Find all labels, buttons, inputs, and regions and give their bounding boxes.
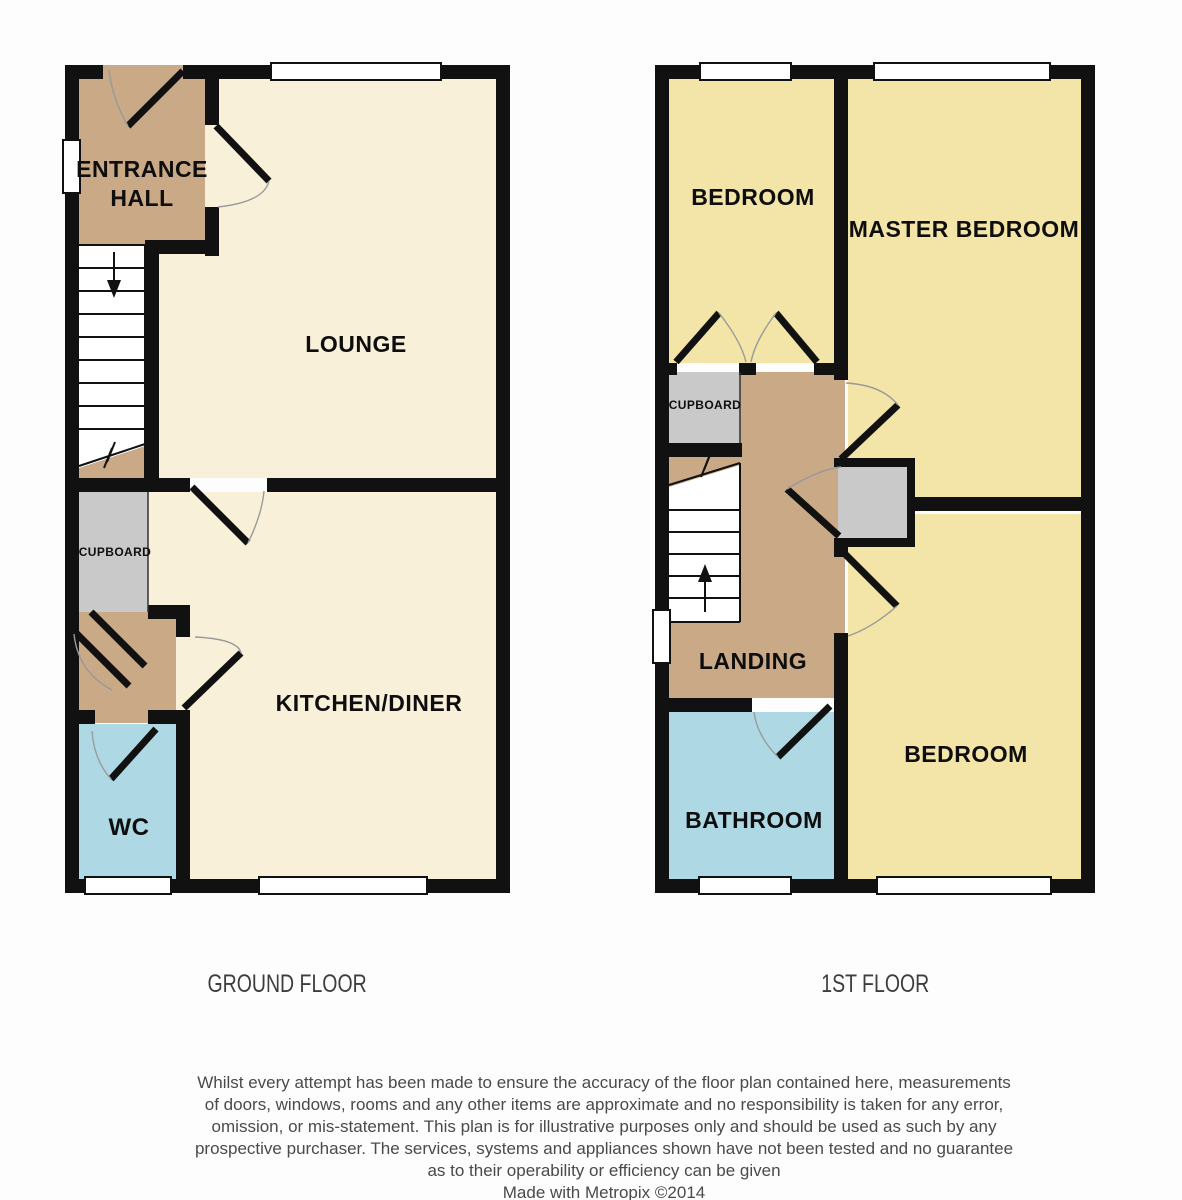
bedroom-front-window	[700, 63, 791, 80]
room-label-entrance-hall-1: ENTRANCE	[76, 156, 208, 182]
metropix-credit: Made with Metropix ©2014	[104, 1182, 1104, 1200]
room-master-bedroom-fill	[848, 79, 1081, 498]
room-bedroom-back-fill	[848, 514, 1081, 879]
disclaimer-line: as to their operability or efficiency ca…	[104, 1160, 1104, 1182]
airing-cupboard	[834, 458, 915, 547]
room-label-lounge: LOUNGE	[305, 331, 406, 357]
lounge-window	[271, 63, 441, 80]
disclaimer-line: Whilst every attempt has been made to en…	[104, 1072, 1104, 1094]
bedroom-back-window	[877, 877, 1051, 894]
wc-window	[85, 877, 171, 894]
room-bedroom-front-fill	[669, 79, 837, 363]
first-floor-caption: 1ST FLOOR	[655, 970, 1095, 999]
first-floor-caption-text: 1ST FLOOR	[821, 970, 929, 999]
room-label-master-bedroom: MASTER BEDROOM	[849, 216, 1080, 242]
room-label-cupboard-gf: CUPBOARD	[79, 545, 152, 559]
rear-hall-fill	[79, 612, 176, 723]
room-label-wc: WC	[109, 814, 150, 841]
room-lounge-fill	[159, 79, 496, 478]
disclaimer: Whilst every attempt has been made to en…	[104, 1072, 1104, 1200]
room-label-entrance-hall-2: HALL	[110, 185, 173, 211]
master-bedroom-window	[874, 63, 1050, 80]
room-bathroom-fill	[669, 712, 837, 879]
airing-cupboard-fill	[838, 467, 908, 538]
floorplan-canvas: ENTRANCE HALL LOUNGE CUPBOARD KITCHEN/DI…	[0, 0, 1182, 1200]
room-entrance-hall-fill	[79, 65, 205, 245]
room-label-cupboard-ff: CUPBOARD	[669, 398, 742, 412]
bathroom-window	[699, 877, 791, 894]
stairs-gf-fill	[79, 245, 145, 468]
ground-floor-plan: ENTRANCE HALL LOUNGE CUPBOARD KITCHEN/DI…	[63, 63, 510, 894]
room-label-bedroom-front: BEDROOM	[691, 184, 815, 210]
disclaimer-line: of doors, windows, rooms and any other i…	[104, 1094, 1104, 1116]
first-floor-plan: BEDROOM MASTER BEDROOM CUPBOARD LANDING …	[653, 63, 1095, 894]
room-wc-fill	[79, 724, 176, 879]
floorplan-drawing: ENTRANCE HALL LOUNGE CUPBOARD KITCHEN/DI…	[0, 0, 1182, 960]
kitchen-window	[259, 877, 427, 894]
room-kitchen-diner-fill	[148, 492, 496, 879]
room-label-bathroom: BATHROOM	[685, 807, 823, 833]
room-label-bedroom-back: BEDROOM	[904, 741, 1028, 767]
disclaimer-line: omission, or mis-statement. This plan is…	[104, 1116, 1104, 1138]
ground-floor-caption-text: GROUND FLOOR	[208, 970, 367, 999]
room-label-landing: LANDING	[699, 648, 807, 674]
disclaimer-line: prospective purchaser. The services, sys…	[104, 1138, 1104, 1160]
landing-side-window	[653, 610, 670, 663]
room-label-kitchen-diner: KITCHEN/DINER	[276, 690, 463, 716]
ground-floor-caption: GROUND FLOOR	[65, 970, 510, 999]
